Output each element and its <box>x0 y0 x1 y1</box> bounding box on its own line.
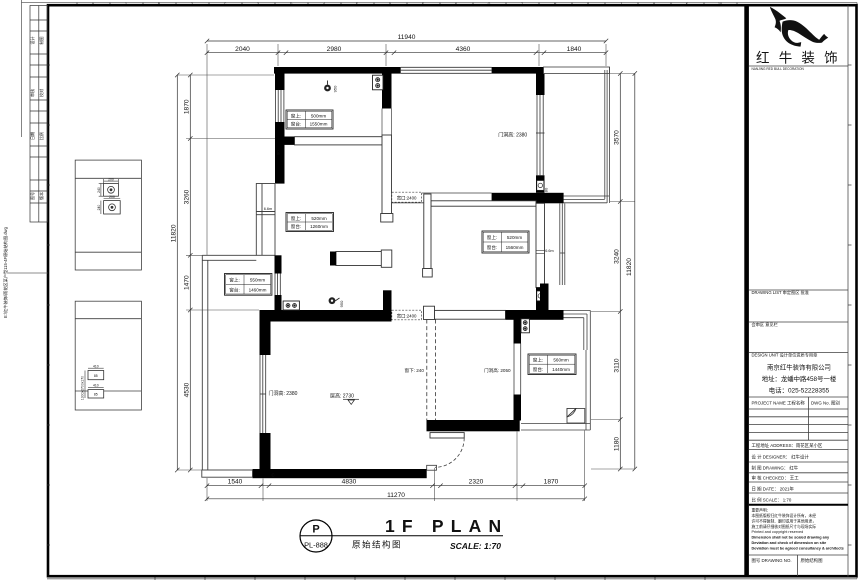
svg-text:窗台:: 窗台: <box>291 121 301 128</box>
svg-text:240: 240 <box>97 205 101 211</box>
svg-text:版本: 版本 <box>38 192 44 200</box>
svg-text:窗台:: 窗台: <box>291 223 301 230</box>
svg-text:窗上:: 窗上: <box>229 276 239 283</box>
svg-text:Printed and copyright reserved: Printed and copyright reserved <box>752 530 804 534</box>
svg-text:门洞高: 2380: 门洞高: 2380 <box>269 390 298 397</box>
svg-text:11270: 11270 <box>387 492 405 499</box>
svg-text:设 计 DESIGNER： 红牛设计: 设 计 DESIGNER： 红牛设计 <box>752 454 810 461</box>
svg-text:原始结构图: 原始结构图 <box>352 540 402 550</box>
svg-text:3570: 3570 <box>614 130 621 145</box>
svg-text:电话：025-52228355: 电话：025-52228355 <box>769 386 830 395</box>
svg-text:1540: 1540 <box>228 479 243 486</box>
svg-text:410: 410 <box>93 365 99 369</box>
svg-text:1300x2700x170: 1300x2700x170 <box>80 376 84 400</box>
svg-text:560mm: 560mm <box>553 357 568 362</box>
svg-text:日 期 DATE： 2021年: 日 期 DATE： 2021年 <box>752 486 795 493</box>
svg-text:窗上:: 窗上: <box>487 234 497 241</box>
svg-text:2980: 2980 <box>327 46 342 53</box>
svg-text:Deviation must be agreed consu: Deviation must be agreed consultancy & a… <box>752 547 844 551</box>
svg-text:窗下: 240: 窗下: 240 <box>405 367 425 374</box>
svg-text:E:\红牛装饰\雨花区某户型115-4F原始结构图.dwg: E:\红牛装饰\雨花区某户型115-4F原始结构图.dwg <box>2 226 9 318</box>
svg-text:1470: 1470 <box>184 275 191 290</box>
svg-text:Deviation and check of dimensi: Deviation and check of dimension on site <box>752 541 827 545</box>
svg-text:SCALE: 1:70: SCALE: 1:70 <box>450 541 501 551</box>
svg-text:C: C <box>271 473 274 478</box>
svg-text:1870: 1870 <box>184 99 191 114</box>
svg-text:重要声明：: 重要声明： <box>752 508 771 513</box>
svg-text:950: 950 <box>333 85 338 92</box>
svg-text:门洞高: 2380: 门洞高: 2380 <box>498 132 527 139</box>
svg-text:1840: 1840 <box>567 46 582 53</box>
svg-text:比例: 比例 <box>38 132 44 140</box>
svg-text:410: 410 <box>93 384 99 388</box>
svg-text:比 例 SCALE： 1:70: 比 例 SCALE： 1:70 <box>752 497 792 504</box>
svg-text:窗上:: 窗上: <box>533 356 543 363</box>
svg-text:1440mm: 1440mm <box>552 367 570 372</box>
svg-text:窗台:: 窗台: <box>229 286 239 293</box>
svg-text:制 图 DRAWING： 红牛: 制 图 DRAWING： 红牛 <box>752 465 799 472</box>
svg-text:审核: 审核 <box>29 89 35 97</box>
svg-text:窗台:: 窗台: <box>533 366 543 373</box>
svg-text:1260mm: 1260mm <box>310 224 328 229</box>
svg-text:日期: 日期 <box>29 132 35 140</box>
svg-text:DWG No. 图别: DWG No. 图别 <box>811 400 840 407</box>
svg-text:3260: 3260 <box>184 189 191 204</box>
svg-text:11820: 11820 <box>626 258 633 276</box>
svg-text:宽口:2400: 宽口:2400 <box>397 195 417 202</box>
svg-text:6.6m: 6.6m <box>264 207 272 211</box>
svg-text:520mm: 520mm <box>311 216 326 221</box>
svg-text:950: 950 <box>339 300 344 307</box>
svg-text:DRAWING LIST 审定图区 批准: DRAWING LIST 审定图区 批准 <box>752 289 809 296</box>
svg-text:设计: 设计 <box>29 37 35 45</box>
svg-text:原始结构图: 原始结构图 <box>801 557 824 564</box>
svg-text:1560mm: 1560mm <box>506 245 524 250</box>
svg-text:80: 80 <box>276 150 281 155</box>
svg-text:85: 85 <box>94 393 98 397</box>
svg-text:门洞高: 2050: 门洞高: 2050 <box>484 367 511 374</box>
svg-text:PROJECT NAME 工程名称: PROJECT NAME 工程名称 <box>752 400 806 407</box>
svg-text:红牛装饰: 红牛装饰 <box>756 51 847 66</box>
svg-text:窗上:: 窗上: <box>291 215 301 222</box>
svg-text:4830: 4830 <box>342 479 357 486</box>
svg-text:3110: 3110 <box>614 358 621 373</box>
svg-text:6.6m: 6.6m <box>545 249 553 253</box>
svg-text:2040: 2040 <box>235 46 250 53</box>
svg-text:550mm: 550mm <box>250 277 265 282</box>
svg-text:PL-888: PL-888 <box>304 541 328 550</box>
svg-text:1550mm: 1550mm <box>310 122 328 127</box>
svg-text:图号: 图号 <box>29 192 35 200</box>
svg-text:许可不得复制、翻印或用于其他用途，: 许可不得复制、翻印或用于其他用途， <box>752 519 817 524</box>
svg-text:520mm: 520mm <box>507 235 522 240</box>
svg-text:1F PLAN: 1F PLAN <box>385 516 508 536</box>
svg-text:工程地址 ADDRESS：雨花区某小区: 工程地址 ADDRESS：雨花区某小区 <box>752 442 823 449</box>
svg-text:宽口:2400: 宽口:2400 <box>397 312 417 319</box>
svg-text:200: 200 <box>108 177 114 181</box>
svg-text:1460mm: 1460mm <box>249 287 267 292</box>
svg-text:窗台:: 窗台: <box>487 244 497 251</box>
svg-text:11940: 11940 <box>398 34 416 41</box>
svg-text:制图: 制图 <box>38 37 44 45</box>
svg-text:施工前请仔细核对图纸尺寸与现场实际: 施工前请仔细核对图纸尺寸与现场实际 <box>752 524 817 529</box>
svg-text:层高: 2730: 层高: 2730 <box>330 393 354 400</box>
svg-text:NANJING RED BULL DECORATION: NANJING RED BULL DECORATION <box>752 67 805 71</box>
svg-text:200: 200 <box>109 195 115 199</box>
svg-text:Dimension shall not be scaled: Dimension shall not be scaled drawing an… <box>752 536 831 540</box>
svg-text:80: 80 <box>544 187 549 192</box>
svg-text:4360: 4360 <box>456 46 471 53</box>
svg-text:4530: 4530 <box>184 382 191 397</box>
svg-text:校对: 校对 <box>38 89 44 97</box>
svg-text:DESIGN UNIT 设计单位资质专用章: DESIGN UNIT 设计单位资质专用章 <box>752 352 818 359</box>
svg-text:P: P <box>312 524 319 536</box>
svg-text:2320: 2320 <box>469 479 484 486</box>
svg-text:3240: 3240 <box>614 249 621 264</box>
svg-text:1180: 1180 <box>614 437 621 452</box>
svg-text:会审区 意见栏: 会审区 意见栏 <box>752 321 778 328</box>
svg-text:11820: 11820 <box>171 224 178 242</box>
svg-text:审 核 CHECKED： 王工: 审 核 CHECKED： 王工 <box>752 475 800 482</box>
svg-text:南京红牛装饰有限公司: 南京红牛装饰有限公司 <box>767 363 831 372</box>
svg-text:1870: 1870 <box>544 479 559 486</box>
svg-text:地址：龙蟠中路458号一楼: 地址：龙蟠中路458号一楼 <box>762 374 837 383</box>
svg-text:本图纸版权归红牛装饰设计所有，未经: 本图纸版权归红牛装饰设计所有，未经 <box>752 513 817 518</box>
svg-text:85: 85 <box>94 374 98 378</box>
svg-text:240: 240 <box>97 187 101 193</box>
svg-text:窗上:: 窗上: <box>291 112 301 119</box>
svg-text:500mm: 500mm <box>311 113 326 118</box>
